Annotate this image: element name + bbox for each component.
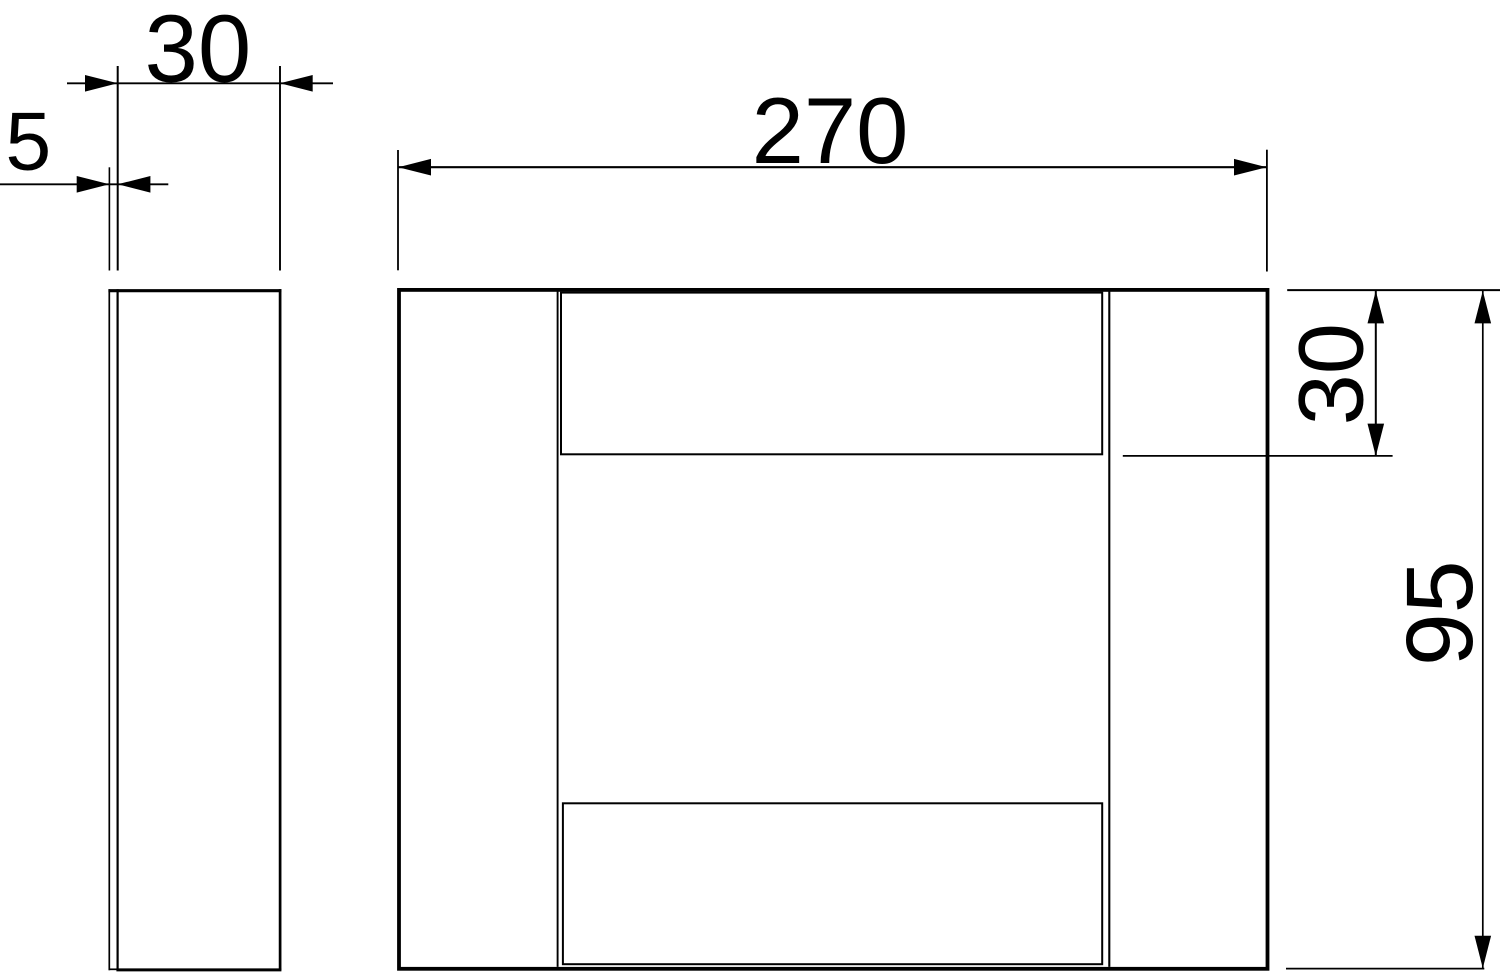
svg-text:5: 5 — [5, 95, 51, 187]
svg-text:30: 30 — [1281, 323, 1383, 425]
svg-text:270: 270 — [752, 78, 909, 183]
svg-text:95: 95 — [1387, 560, 1493, 666]
svg-text:30: 30 — [145, 0, 252, 102]
